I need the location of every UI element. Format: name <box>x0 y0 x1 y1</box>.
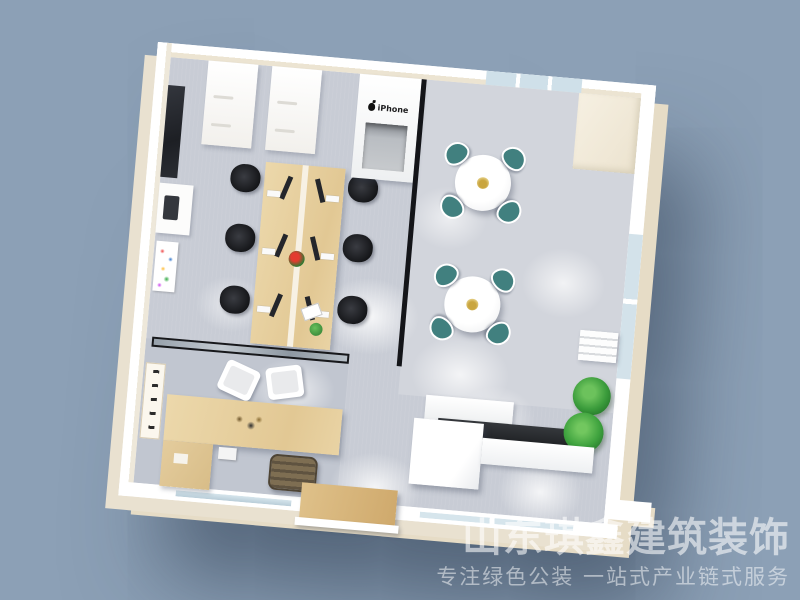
keyboard <box>267 190 280 197</box>
wall-ledge-right <box>604 499 652 523</box>
corner-column <box>573 93 641 174</box>
counter-niche <box>362 122 408 171</box>
storage-cabinet <box>265 66 322 154</box>
cabinet-handle <box>213 95 233 100</box>
apple-logo-icon <box>367 103 375 112</box>
printer <box>163 195 180 220</box>
keyboard <box>257 306 270 313</box>
building-shell: iPhone <box>118 42 656 539</box>
table-centerpiece <box>466 298 479 311</box>
cabinet-handle <box>277 101 297 106</box>
side-cabinet <box>159 440 213 490</box>
keyboard <box>262 248 275 255</box>
keyboard <box>321 253 334 260</box>
desk-accessories <box>232 412 264 437</box>
keyboard <box>326 195 339 202</box>
storage-cabinet <box>201 60 258 148</box>
table-centerpiece <box>476 176 489 189</box>
reception-desk <box>408 418 483 490</box>
cabinet-handle <box>274 128 294 133</box>
cabinet-handle <box>210 123 230 128</box>
watermark-slogan: 专注绿色公装 一站式产业链式服务 <box>436 567 790 588</box>
desk-pad <box>218 447 237 461</box>
air-conditioner <box>578 330 618 363</box>
render-stage: iPhone <box>0 0 800 600</box>
side-cabinet-panel <box>173 453 188 464</box>
guest-chair <box>265 364 305 400</box>
apple-sign-label: iPhone <box>377 103 409 115</box>
art-poster <box>152 241 178 293</box>
